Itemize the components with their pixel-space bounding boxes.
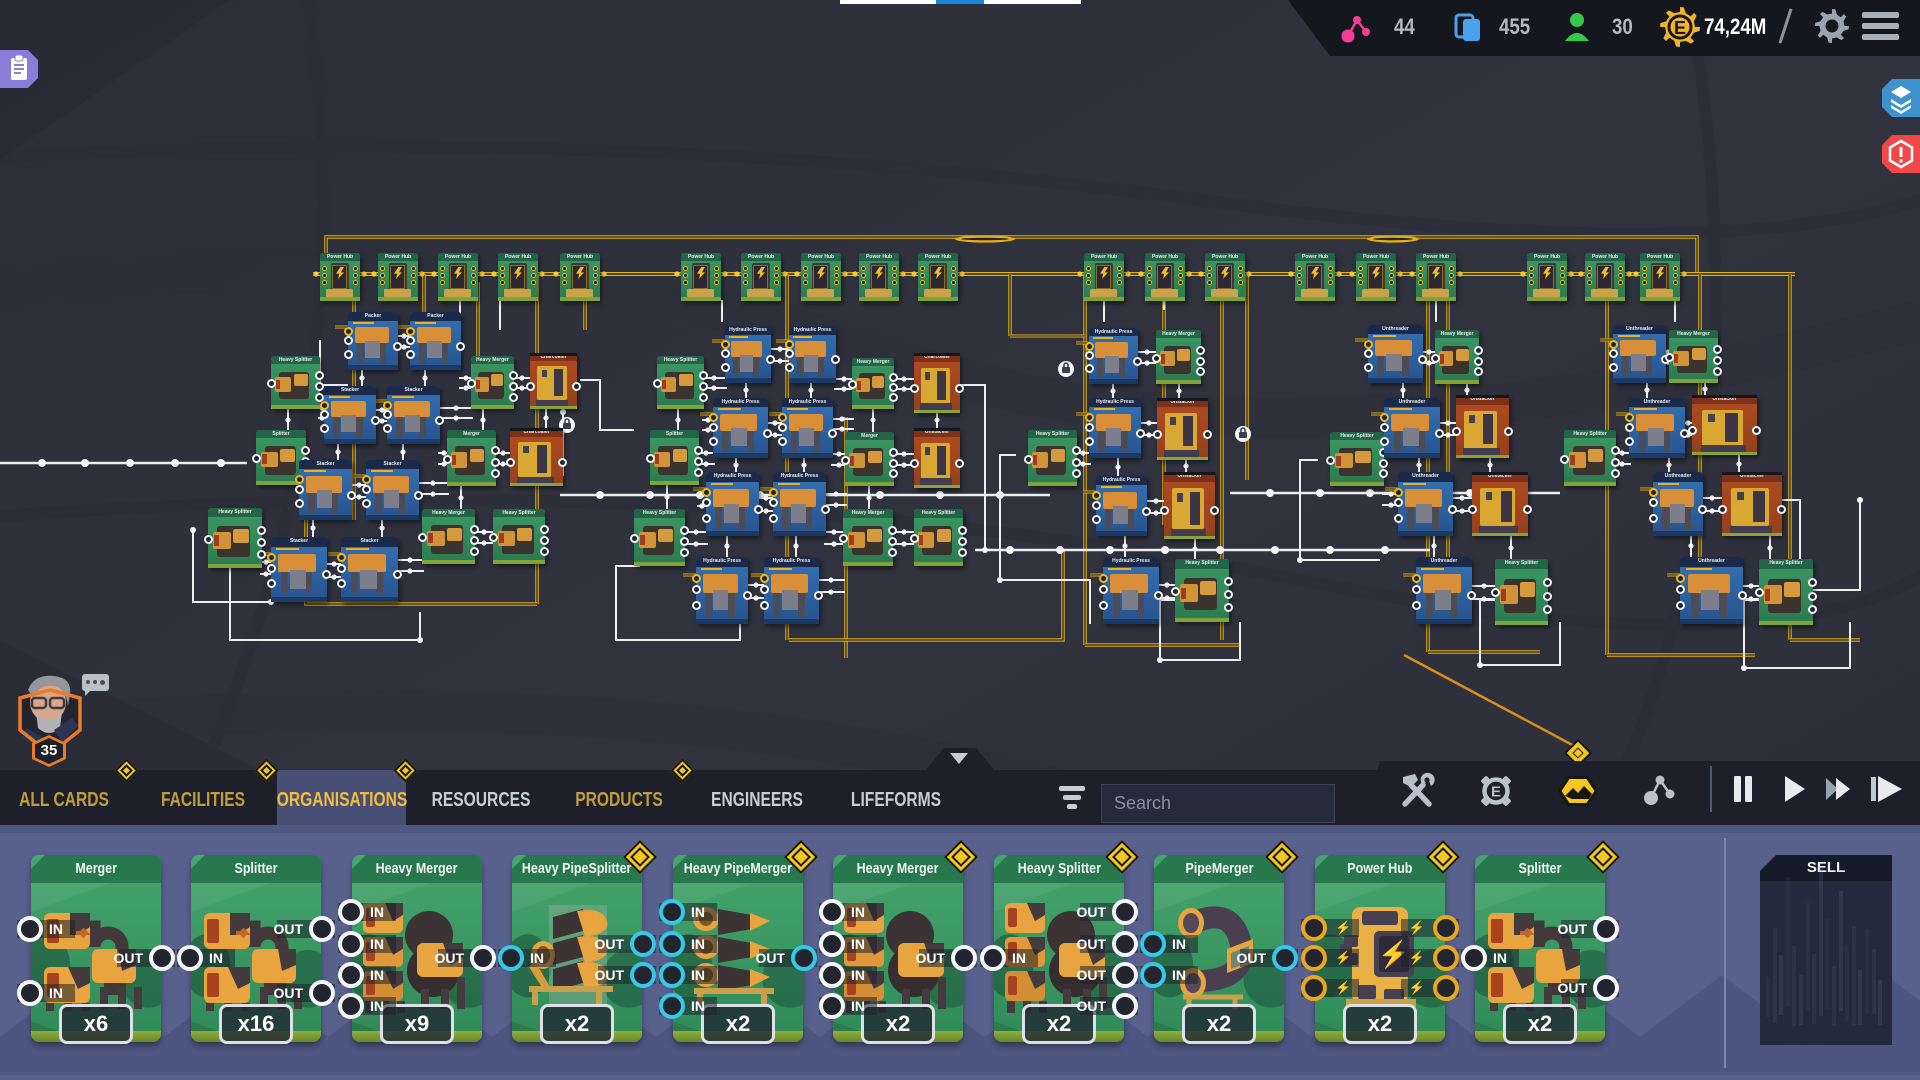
svg-text:E: E (1674, 18, 1686, 38)
svg-text:E: E (1491, 784, 1501, 801)
